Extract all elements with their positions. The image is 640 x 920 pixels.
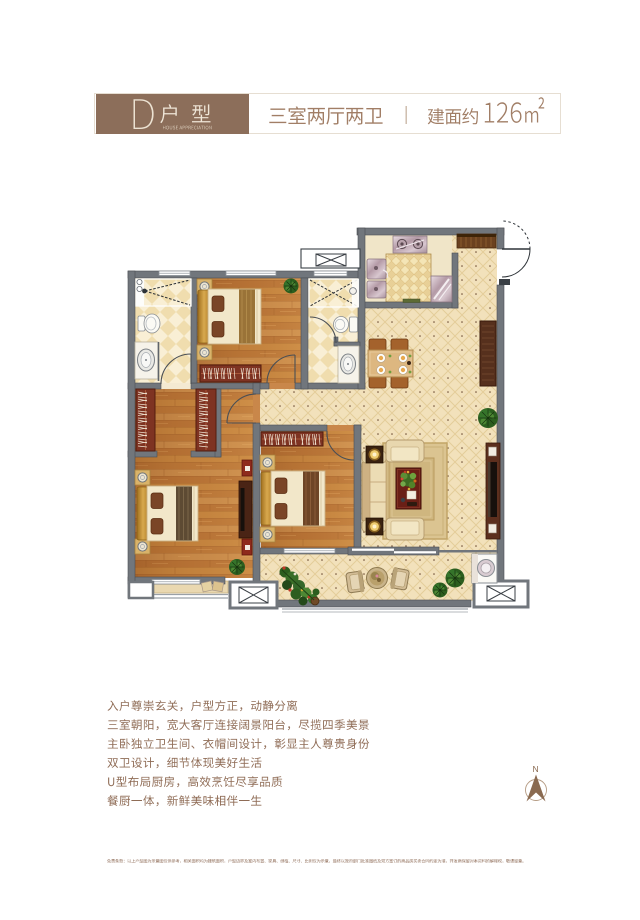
svg-text:N: N: [533, 764, 539, 774]
